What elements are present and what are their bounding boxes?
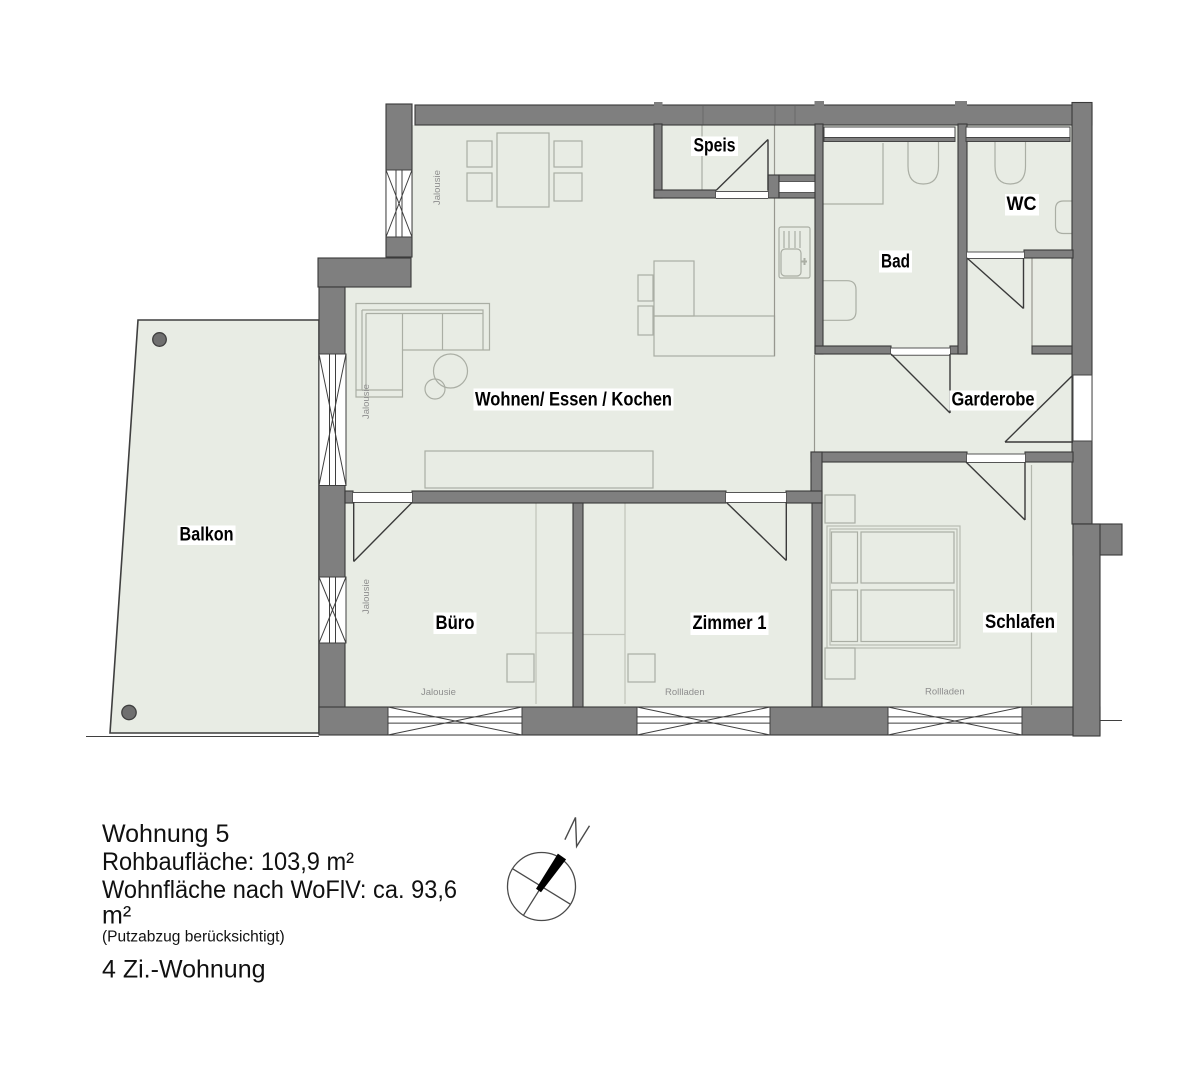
- svg-text:Jalousie: Jalousie: [361, 579, 372, 614]
- svg-text:Jalousie: Jalousie: [432, 170, 443, 205]
- svg-text:Wohnen/ Essen / Kochen: Wohnen/ Essen / Kochen: [475, 389, 672, 411]
- svg-text:Balkon: Balkon: [180, 524, 234, 546]
- svg-text:4 Zi.-Wohnung: 4 Zi.-Wohnung: [102, 956, 266, 984]
- svg-text:(Putzabzug berücksichtigt): (Putzabzug berücksichtigt): [102, 929, 285, 946]
- svg-text:Rollladen: Rollladen: [925, 687, 965, 698]
- svg-text:Garderobe: Garderobe: [952, 389, 1035, 411]
- svg-text:Rollladen: Rollladen: [665, 687, 705, 698]
- svg-text:Wohnfläche nach WoFlV: ca. 93,: Wohnfläche nach WoFlV: ca. 93,6: [102, 876, 457, 904]
- svg-text:Jalousie: Jalousie: [421, 687, 456, 698]
- svg-text:Rohbaufläche: 103,9 m²: Rohbaufläche: 103,9 m²: [102, 848, 354, 876]
- svg-text:Wohnung 5: Wohnung 5: [102, 820, 229, 848]
- svg-text:m²: m²: [102, 902, 131, 930]
- svg-text:Büro: Büro: [436, 612, 475, 634]
- svg-text:Jalousie: Jalousie: [361, 384, 372, 419]
- svg-text:Bad: Bad: [881, 251, 910, 273]
- svg-text:Schlafen: Schlafen: [985, 611, 1055, 633]
- svg-text:Speis: Speis: [694, 135, 736, 157]
- svg-text:WC: WC: [1007, 193, 1037, 215]
- svg-text:Zimmer 1: Zimmer 1: [693, 612, 767, 634]
